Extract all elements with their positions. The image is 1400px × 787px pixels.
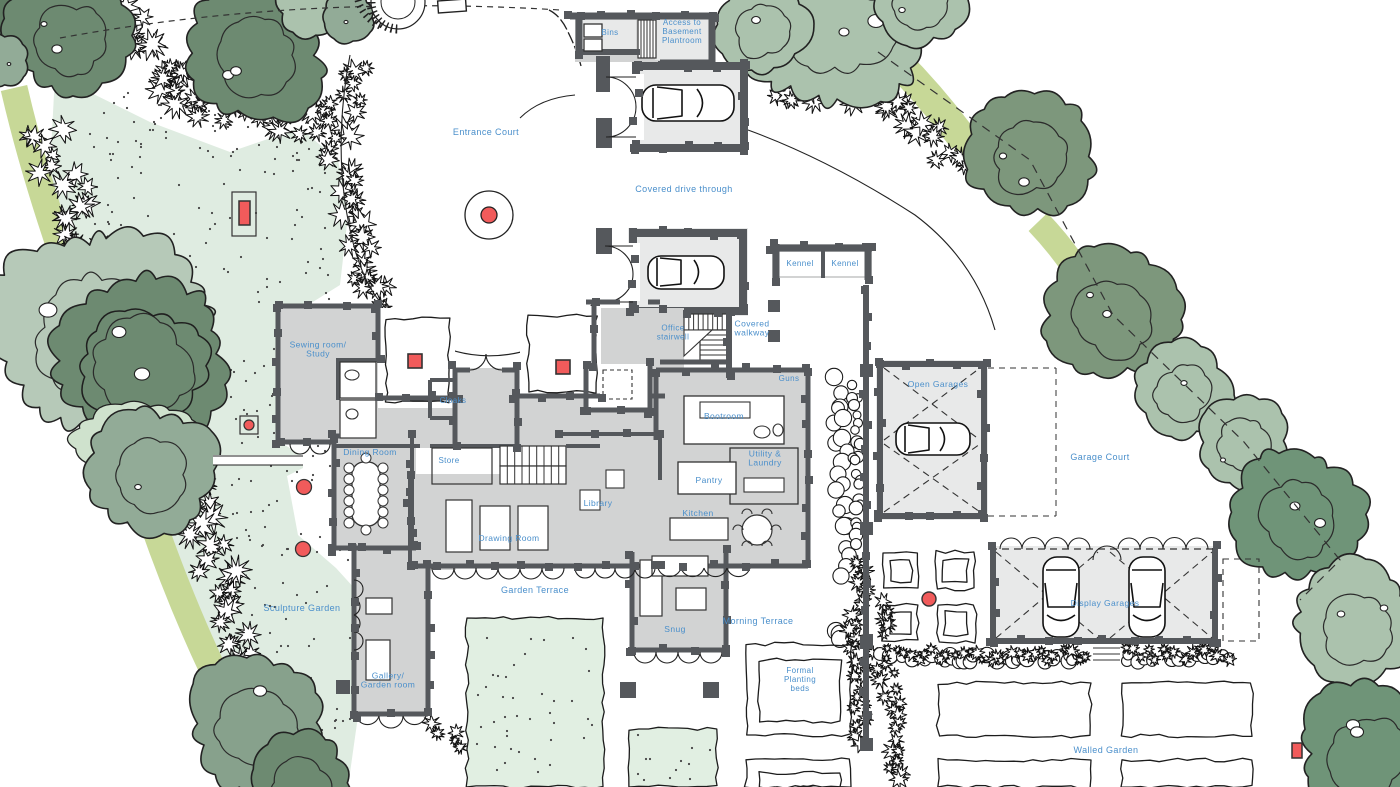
svg-text:Plantroom: Plantroom (662, 36, 702, 45)
svg-text:Office: Office (661, 324, 684, 333)
svg-text:Walled Garden: Walled Garden (1074, 745, 1139, 755)
svg-text:stairwell: stairwell (657, 332, 690, 341)
svg-text:Guns: Guns (779, 374, 800, 383)
svg-text:Open Garages: Open Garages (908, 379, 969, 389)
svg-text:Kennel: Kennel (831, 259, 858, 268)
svg-text:Formal: Formal (786, 666, 813, 675)
svg-text:Pantry: Pantry (696, 475, 723, 485)
svg-text:Dining Room: Dining Room (343, 447, 397, 457)
svg-text:Access to: Access to (663, 18, 701, 27)
svg-text:Snug: Snug (664, 624, 685, 634)
svg-text:Kennel: Kennel (786, 259, 813, 268)
svg-text:Sculpture Garden: Sculpture Garden (264, 603, 341, 613)
svg-text:Garden Terrace: Garden Terrace (501, 585, 569, 595)
svg-text:Kitchen: Kitchen (682, 508, 713, 518)
svg-text:Covered drive through: Covered drive through (635, 184, 732, 194)
svg-text:Study: Study (306, 349, 330, 359)
svg-text:Garage Court: Garage Court (1070, 452, 1129, 462)
svg-text:Bins: Bins (601, 28, 618, 37)
svg-text:Basement: Basement (662, 27, 702, 36)
svg-text:Bootroom: Bootroom (704, 411, 744, 421)
svg-text:Laundry: Laundry (748, 458, 782, 468)
svg-text:Library: Library (584, 498, 613, 508)
svg-text:Store: Store (438, 456, 459, 465)
svg-text:Cloaks: Cloaks (440, 396, 467, 405)
svg-text:Entrance Court: Entrance Court (453, 127, 519, 137)
svg-text:Morning Terrace: Morning Terrace (723, 616, 794, 626)
svg-text:beds: beds (791, 684, 810, 693)
svg-text:Garden room: Garden room (361, 680, 415, 690)
svg-text:Drawing Room: Drawing Room (478, 533, 539, 543)
svg-text:Display Garages: Display Garages (1071, 598, 1140, 608)
svg-text:Planting: Planting (784, 675, 816, 684)
svg-text:walkway: walkway (734, 328, 770, 338)
